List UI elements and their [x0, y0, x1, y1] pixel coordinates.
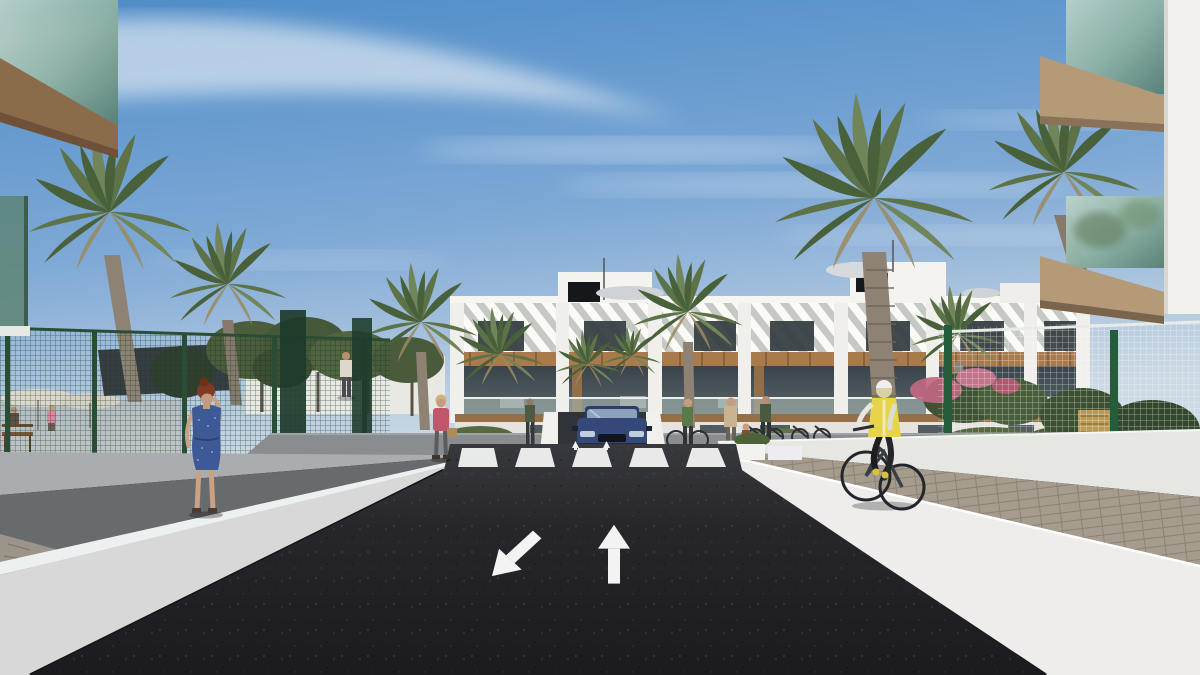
car-grille [598, 434, 626, 442]
architectural-render-image [0, 0, 1200, 675]
dress [192, 405, 221, 470]
rooftop-vent [568, 282, 600, 302]
headlight [580, 431, 595, 437]
headlight [629, 431, 644, 437]
handbag [447, 428, 457, 437]
balcony-ledge [0, 326, 30, 336]
fence-panel [352, 318, 372, 453]
balcony-glass-lower [1066, 196, 1164, 268]
building-column [1164, 0, 1200, 314]
render-scene [0, 0, 1200, 675]
balcony-glass-side [0, 196, 26, 328]
